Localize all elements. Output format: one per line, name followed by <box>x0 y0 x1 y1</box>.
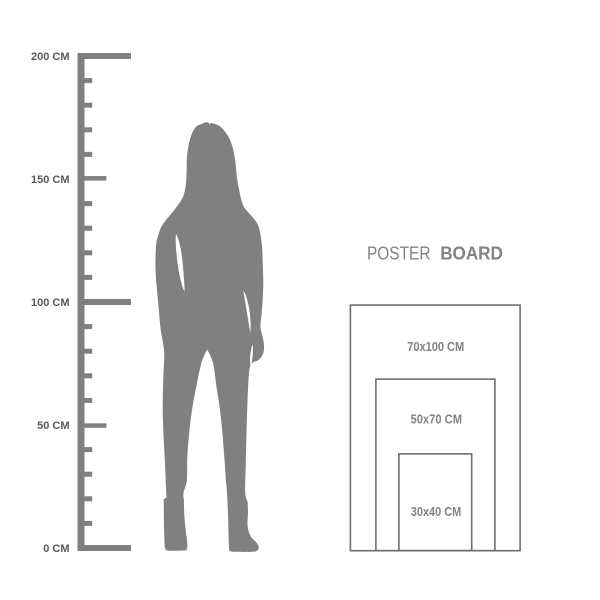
svg-text:30x40 CM: 30x40 CM <box>411 504 462 519</box>
svg-text:POSTER: POSTER <box>367 244 431 264</box>
svg-text:50 CM: 50 CM <box>37 420 69 432</box>
svg-text:50x70 CM: 50x70 CM <box>411 411 463 426</box>
svg-text:0 CM: 0 CM <box>43 543 69 555</box>
svg-text:BOARD: BOARD <box>440 244 503 264</box>
svg-text:100 CM: 100 CM <box>31 297 70 309</box>
svg-text:70x100 CM: 70x100 CM <box>407 339 464 354</box>
svg-text:200 CM: 200 CM <box>31 51 70 63</box>
svg-text:150 CM: 150 CM <box>31 174 70 186</box>
